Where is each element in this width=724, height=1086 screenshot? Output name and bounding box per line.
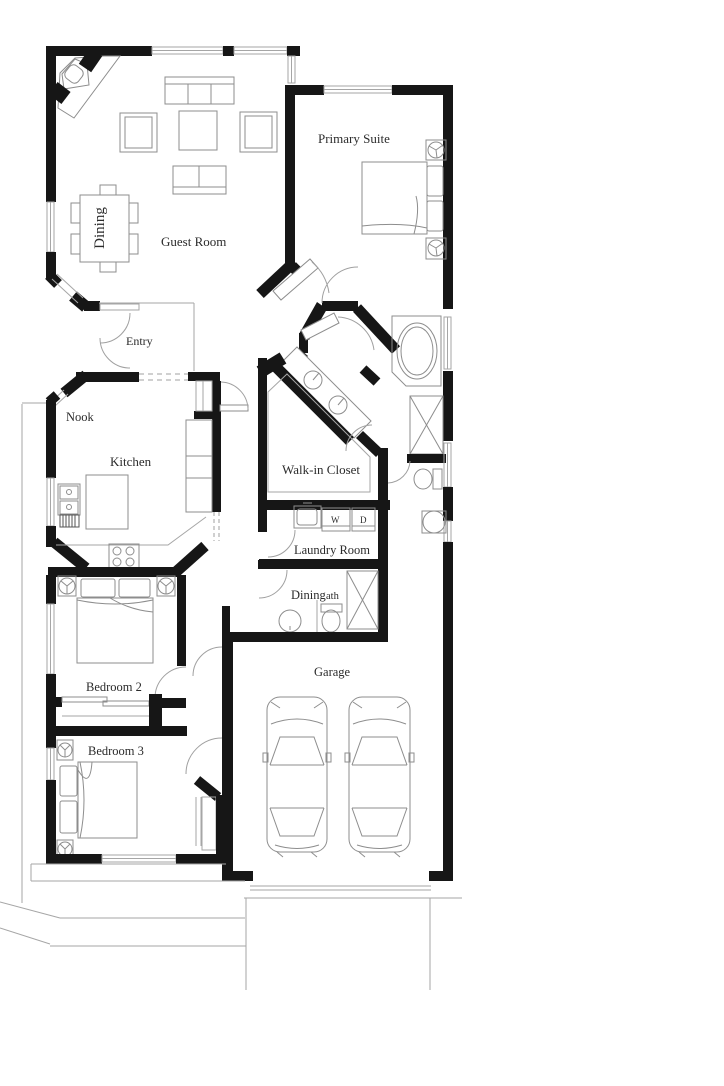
svg-text:Bedroom 3: Bedroom 3: [88, 744, 144, 758]
svg-text:Dining: Dining: [291, 588, 326, 602]
svg-text:Garage: Garage: [314, 665, 351, 679]
svg-text:Dining: Dining: [92, 207, 108, 249]
svg-text:Guest Room: Guest Room: [161, 234, 226, 249]
svg-text:Bedroom 2: Bedroom 2: [86, 680, 142, 694]
svg-text:D: D: [360, 515, 367, 525]
svg-text:ath: ath: [326, 591, 340, 602]
svg-text:Laundry Room: Laundry Room: [294, 543, 370, 557]
svg-text:Kitchen: Kitchen: [110, 454, 152, 469]
svg-text:W: W: [331, 515, 340, 525]
svg-text:Walk-in Closet: Walk-in Closet: [282, 462, 360, 477]
svg-text:Nook: Nook: [66, 410, 95, 424]
svg-text:Entry: Entry: [126, 334, 153, 348]
svg-text:Primary Suite: Primary Suite: [318, 131, 390, 146]
